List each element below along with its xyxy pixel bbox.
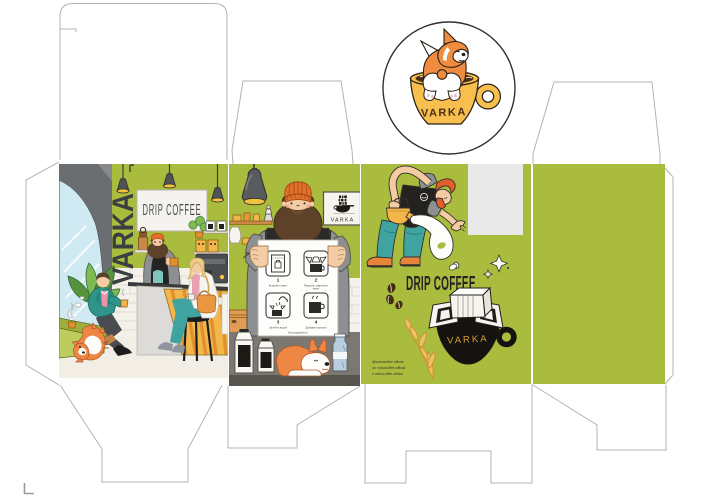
svg-text:Наслаждайтесь!: Наслаждайтесь! [288, 331, 308, 335]
svg-text:пакет: пакет [313, 288, 320, 291]
svg-text:VARKA: VARKA [447, 333, 489, 346]
svg-text:VARKA: VARKA [105, 193, 139, 285]
svg-text:VARKA: VARKA [421, 106, 467, 120]
svg-text:4: 4 [315, 320, 318, 325]
svg-text:Вскройте пакет: Вскройте пакет [269, 284, 288, 288]
svg-text:1: 1 [277, 278, 280, 283]
svg-text:Залейте водой: Залейте водой [269, 326, 287, 330]
svg-text:vk: varkacoffee.official: vk: varkacoffee.official [372, 366, 405, 370]
svg-text:3: 3 [277, 320, 280, 325]
svg-text:# varkacoffee.official: # varkacoffee.official [372, 372, 403, 376]
svg-text:DRIP COFFEE: DRIP COFFEE [143, 201, 202, 219]
svg-text:2: 2 [315, 278, 318, 283]
svg-text:Добавьте молоко: Добавьте молоко [306, 326, 327, 330]
svg-text:@varkacoffee.official: @varkacoffee.official [372, 360, 404, 364]
svg-text:VARKA: VARKA [331, 218, 355, 224]
